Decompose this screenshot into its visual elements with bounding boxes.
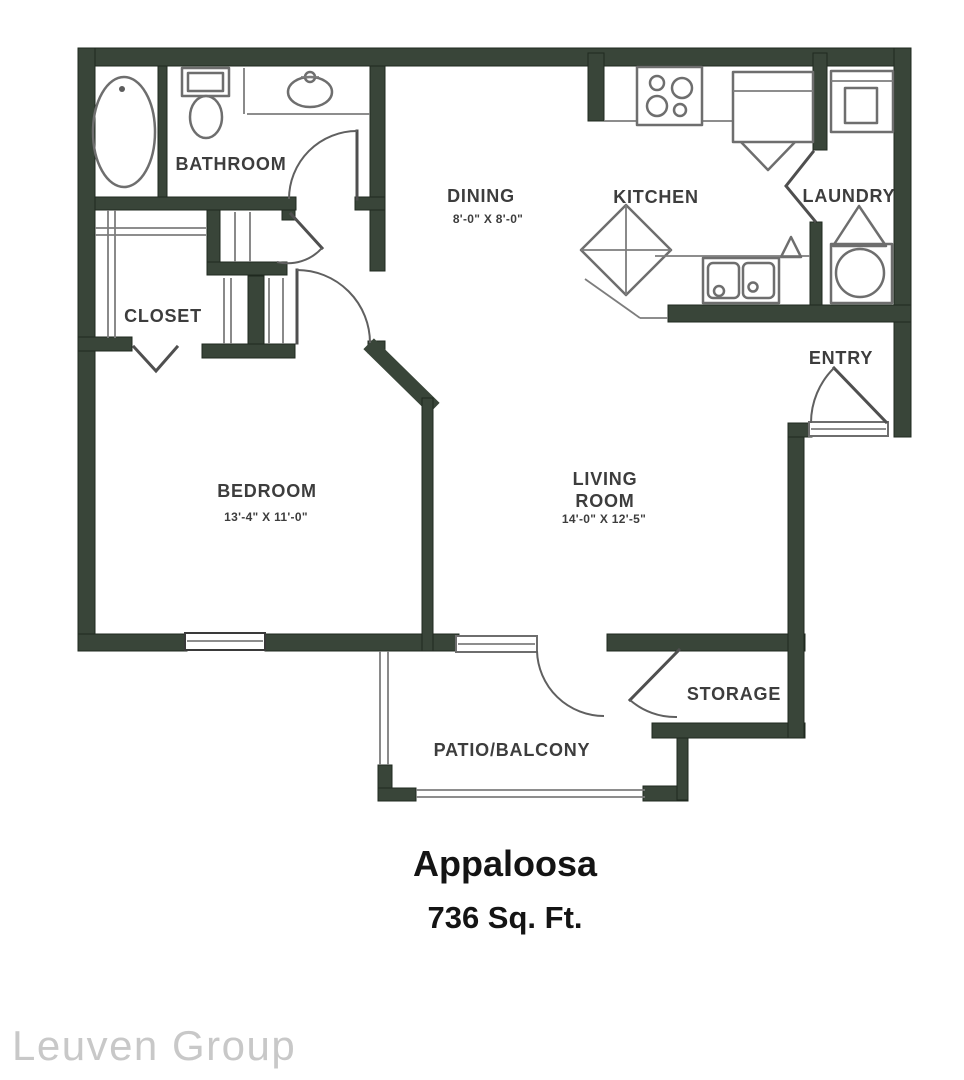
wall-linen-center	[248, 276, 264, 346]
wall-hall-cell-west	[207, 210, 220, 268]
sink-drain	[749, 283, 758, 292]
bedroom-door	[297, 270, 370, 343]
wall-right	[894, 48, 911, 437]
wall-tub-enclosure	[158, 66, 167, 197]
sink-basin	[743, 263, 774, 298]
bathtub-drain-icon	[119, 86, 125, 92]
room-labels: BATHROOM CLOSET DINING 8'-0" X 8'-0" KIT…	[124, 154, 895, 760]
wall-living-east	[788, 425, 804, 738]
room-label-patio: PATIO/BALCONY	[434, 740, 591, 760]
floor-plan-svg: BATHROOM CLOSET DINING 8'-0" X 8'-0" KIT…	[0, 0, 964, 1080]
wall-storage-south	[652, 723, 805, 738]
wall-patio-east	[677, 738, 688, 800]
wall-bathroom-south	[95, 197, 296, 210]
dryer-door-swing	[833, 206, 886, 246]
patio-door	[537, 651, 604, 716]
sink-drain	[714, 286, 724, 296]
bathtub-icon	[93, 77, 155, 187]
storage-door-leaf	[630, 650, 679, 700]
entry-door-leaf	[834, 368, 886, 422]
plan-area: 736 Sq. Ft.	[427, 900, 582, 935]
dryer-drum	[836, 249, 884, 297]
wall-bathroom-east	[370, 66, 385, 271]
counter-edge-angled	[585, 279, 640, 318]
room-dims-living: 14'-0" X 12'-5"	[562, 512, 646, 526]
room-dims-dining: 8'-0" X 8'-0"	[453, 212, 523, 226]
storage-door-arc	[630, 700, 677, 717]
hall-door-leaf	[291, 214, 322, 248]
floor-plan-page: BATHROOM CLOSET DINING 8'-0" X 8'-0" KIT…	[0, 0, 964, 1080]
wall-top	[78, 48, 911, 66]
room-label-kitchen: KITCHEN	[613, 187, 699, 207]
windows	[185, 422, 888, 652]
bedroom-door-arc	[297, 270, 370, 343]
toilet-bowl-icon	[190, 96, 222, 138]
wall-bedroom-diagonal	[374, 349, 429, 403]
refrigerator-icon	[733, 72, 813, 142]
entry-door-arc	[811, 368, 834, 423]
room-dims-bedroom: 13'-4" X 11'-0"	[224, 510, 308, 524]
cabinet-corner-mark	[781, 237, 801, 257]
plan-title-block: Appaloosa 736 Sq. Ft.	[413, 843, 598, 935]
wall-bedroom-south-west	[78, 634, 187, 651]
refrigerator-door-swing	[741, 142, 795, 170]
patio-railings	[380, 651, 645, 797]
room-label-bathroom: BATHROOM	[175, 154, 286, 174]
room-label-living-2: ROOM	[575, 491, 634, 511]
kitchen-sink-icon	[703, 258, 779, 303]
wall-living-south-east	[607, 634, 805, 651]
wall-patio-corner-foot	[378, 788, 416, 801]
hall-door-arc	[277, 248, 322, 263]
wall-kitchen-west-stub	[588, 53, 604, 121]
wall-hall-cell-south	[207, 262, 287, 275]
stove-icon	[637, 67, 702, 125]
wall-bedroom-south-east	[265, 634, 433, 651]
room-label-storage: STORAGE	[687, 684, 781, 704]
room-label-entry: ENTRY	[809, 348, 873, 368]
wall-bedroom-east	[422, 398, 433, 651]
room-label-living-1: LIVING	[573, 469, 638, 489]
room-label-closet: CLOSET	[124, 306, 202, 326]
wall-closet-south	[78, 337, 132, 351]
wall-laundry-west-upper	[813, 53, 827, 150]
bathroom-door	[289, 131, 357, 199]
room-label-dining: DINING	[447, 186, 515, 206]
bathroom-door-arc	[289, 131, 357, 199]
wall-kitchen-south	[668, 305, 911, 322]
storage-door	[630, 650, 679, 717]
closet-bifold-lines	[134, 347, 177, 371]
washer-lid	[845, 88, 877, 123]
room-label-laundry: LAUNDRY	[803, 186, 896, 206]
room-label-bedroom: BEDROOM	[217, 481, 317, 501]
watermark-text: Leuven Group	[12, 1022, 296, 1069]
wall-bathroom-south-stub	[355, 197, 385, 210]
hall-door	[277, 214, 322, 263]
entry-door	[811, 368, 886, 423]
closet-bifold-door	[134, 347, 177, 371]
wall-linen-south	[202, 344, 295, 358]
patio-door-arc	[537, 651, 604, 716]
plan-title: Appaloosa	[413, 843, 598, 884]
